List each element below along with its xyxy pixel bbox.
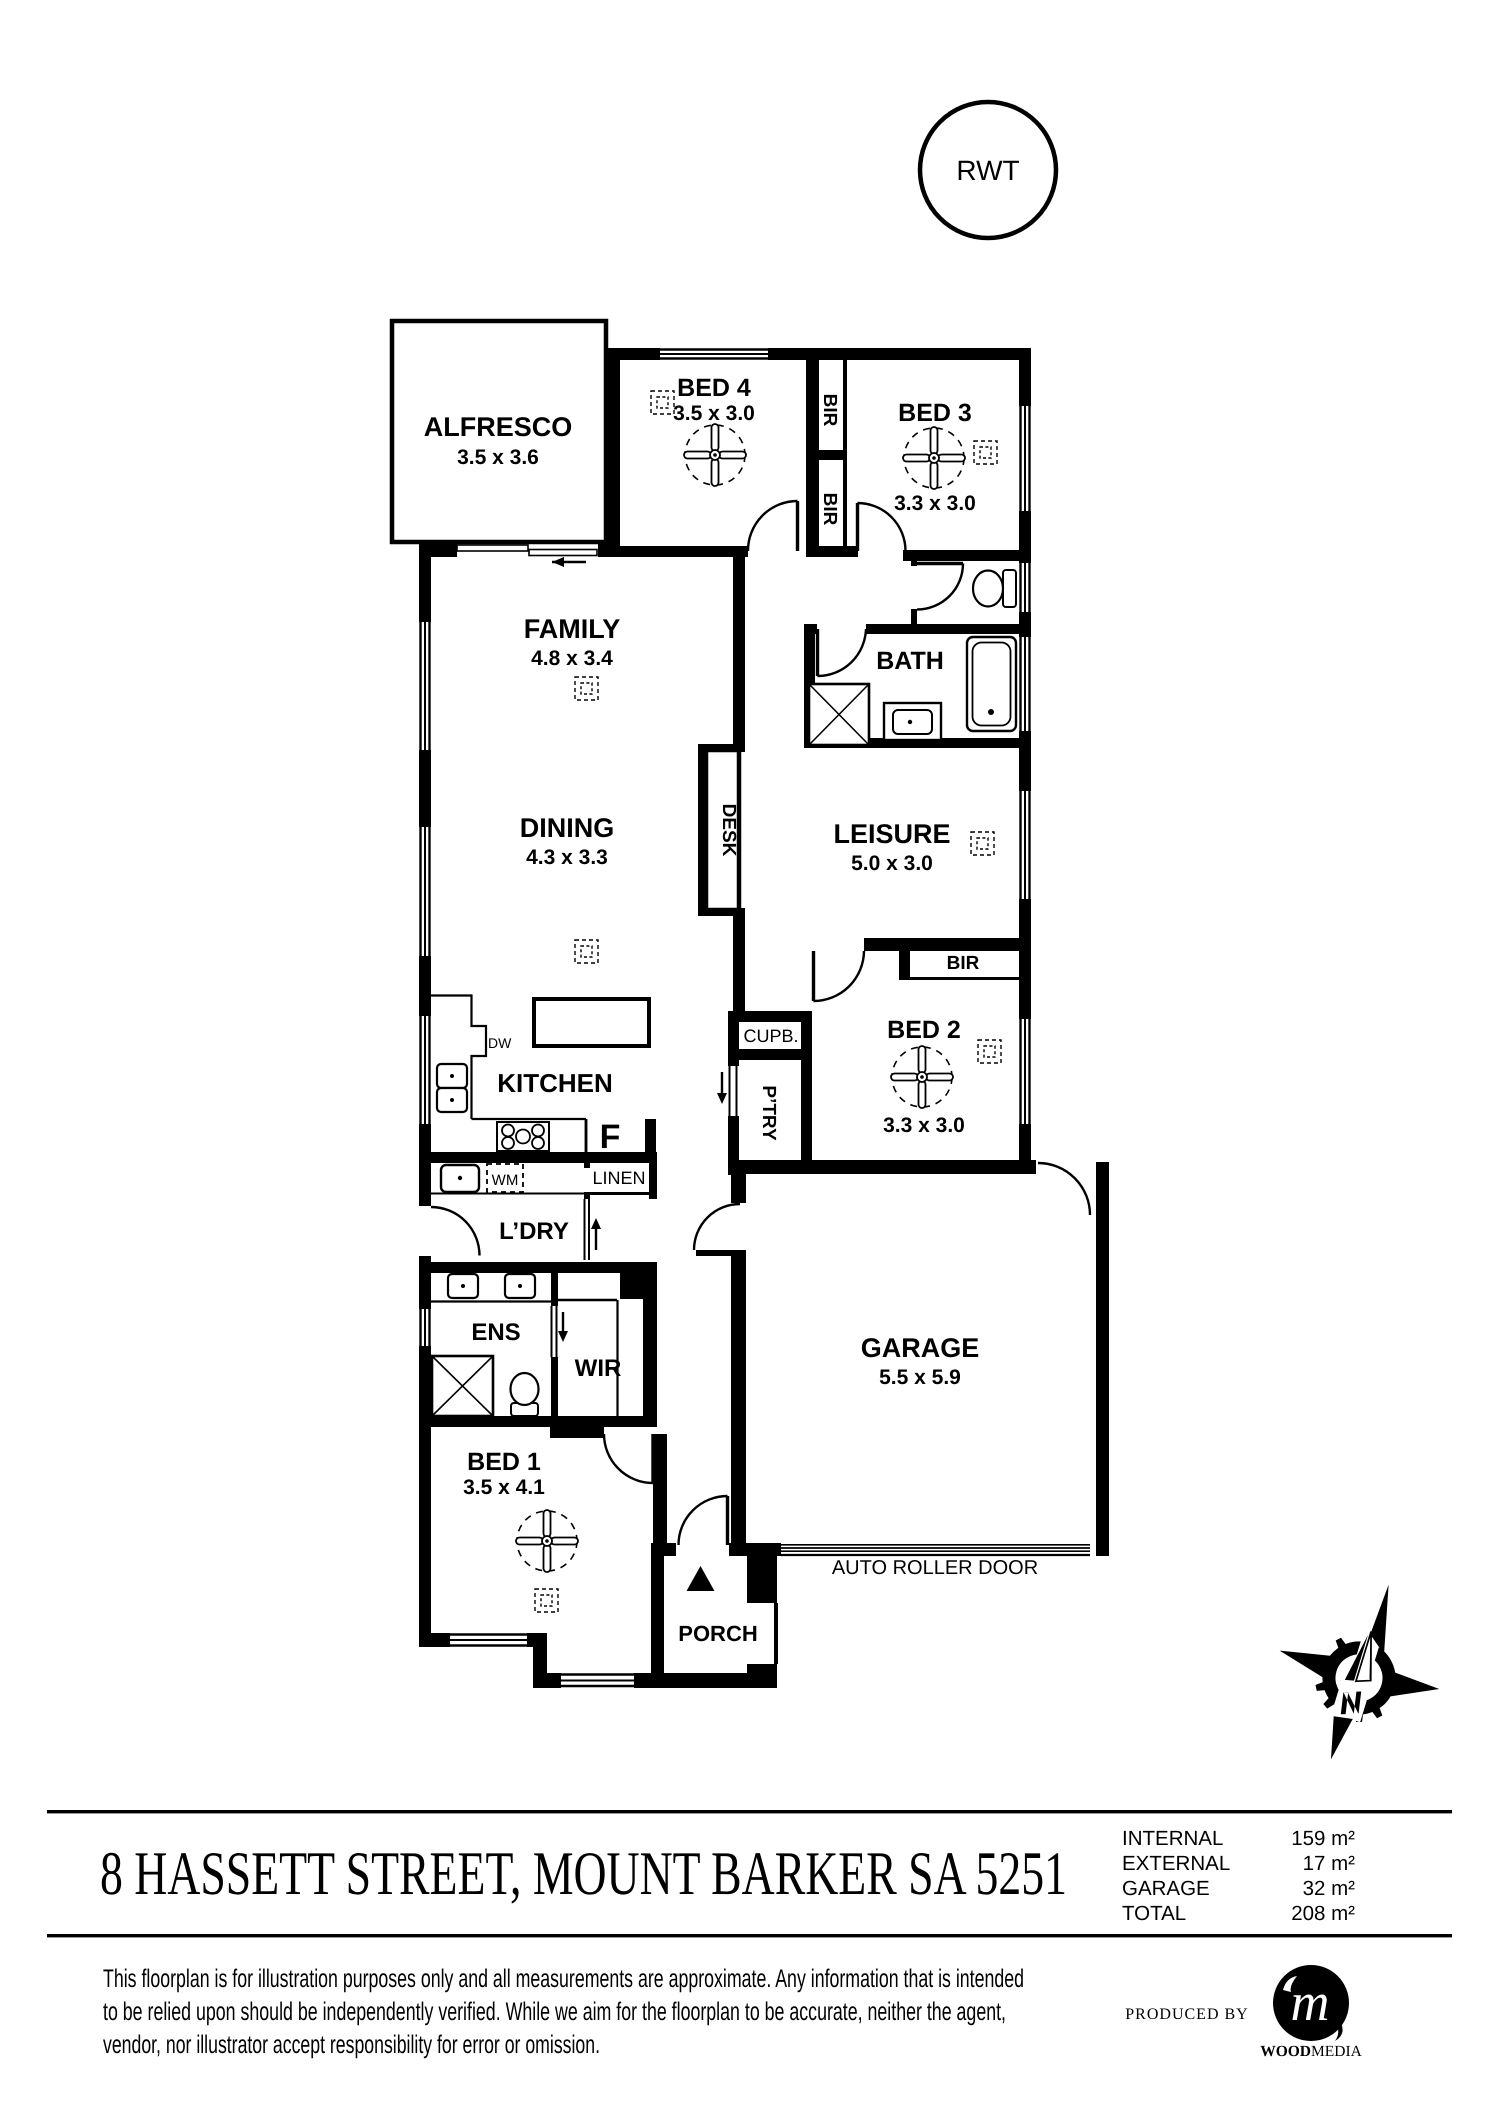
svg-text:LINEN: LINEN <box>592 1168 645 1188</box>
svg-text:L’DRY: L’DRY <box>499 1218 569 1245</box>
svg-text:BED 2: BED 2 <box>887 1016 961 1044</box>
svg-text:DINING: DINING <box>520 813 615 843</box>
svg-text:17 m²: 17 m² <box>1303 1852 1356 1875</box>
svg-text:WM: WM <box>492 1172 519 1189</box>
svg-text:4.3 x 3.3: 4.3 x 3.3 <box>526 846 608 869</box>
svg-text:vendor, nor illustrator accept: vendor, nor illustrator accept responsib… <box>103 2031 600 2059</box>
svg-text:FAMILY: FAMILY <box>524 614 621 644</box>
svg-text:PRODUCED BY: PRODUCED BY <box>1125 2006 1248 2023</box>
svg-text:RWT: RWT <box>956 155 1019 186</box>
svg-text:EXTERNAL: EXTERNAL <box>1122 1852 1230 1875</box>
svg-text:KITCHEN: KITCHEN <box>497 1068 613 1098</box>
svg-text:to be relied upon should be in: to be relied upon should be independentl… <box>103 1998 1006 2026</box>
svg-text:5.0 x 3.0: 5.0 x 3.0 <box>851 852 933 875</box>
svg-text:PORCH: PORCH <box>678 1621 757 1646</box>
svg-text:3.5 x 3.6: 3.5 x 3.6 <box>457 446 539 469</box>
svg-text:AUTO ROLLER DOOR: AUTO ROLLER DOOR <box>832 1557 1038 1579</box>
svg-text:3.5 x 4.1: 3.5 x 4.1 <box>463 1476 545 1499</box>
svg-text:BED 1: BED 1 <box>467 1448 541 1476</box>
svg-text:159 m²: 159 m² <box>1291 1827 1355 1850</box>
svg-text:TOTAL: TOTAL <box>1122 1902 1186 1925</box>
svg-text:DESK: DESK <box>718 804 739 857</box>
svg-text:BIR: BIR <box>819 394 840 427</box>
svg-text:8 HASSETT STREET, MOUNT BARKER: 8 HASSETT STREET, MOUNT BARKER SA 5251 <box>100 1840 1067 1908</box>
svg-text:3.5 x 3.0: 3.5 x 3.0 <box>673 402 755 425</box>
svg-text:DW: DW <box>488 1035 512 1051</box>
svg-text:m: m <box>1291 1972 1330 2032</box>
svg-text:CUPB.: CUPB. <box>743 1026 798 1046</box>
svg-text:32 m²: 32 m² <box>1303 1877 1356 1900</box>
svg-text:INTERNAL: INTERNAL <box>1122 1827 1223 1850</box>
svg-text:4.8 x 3.4: 4.8 x 3.4 <box>531 647 613 670</box>
svg-text:GARAGE: GARAGE <box>1122 1877 1210 1900</box>
svg-text:ENS: ENS <box>471 1319 520 1346</box>
svg-text:BED 3: BED 3 <box>898 399 972 427</box>
svg-text:3.3 x 3.0: 3.3 x 3.0 <box>894 492 976 515</box>
svg-text:BIR: BIR <box>947 953 980 974</box>
svg-text:WOODMEDIA: WOODMEDIA <box>1260 2043 1362 2060</box>
svg-text:BED 4: BED 4 <box>677 374 751 402</box>
svg-text:208 m²: 208 m² <box>1291 1902 1355 1925</box>
svg-text:5.5 x 5.9: 5.5 x 5.9 <box>879 1366 961 1389</box>
svg-text:P’TRY: P’TRY <box>758 1085 779 1141</box>
svg-text:BIR: BIR <box>819 493 840 526</box>
svg-text:3.3 x 3.0: 3.3 x 3.0 <box>883 1114 965 1137</box>
svg-text:LEISURE: LEISURE <box>833 819 950 849</box>
svg-text:GARAGE: GARAGE <box>861 1333 980 1363</box>
svg-text:F: F <box>600 1118 621 1156</box>
svg-text:ALFRESCO: ALFRESCO <box>424 412 573 442</box>
svg-text:WIR: WIR <box>575 1355 622 1382</box>
svg-text:This floorplan is for illustra: This floorplan is for illustration purpo… <box>103 1965 1024 1993</box>
svg-text:BATH: BATH <box>876 647 944 675</box>
